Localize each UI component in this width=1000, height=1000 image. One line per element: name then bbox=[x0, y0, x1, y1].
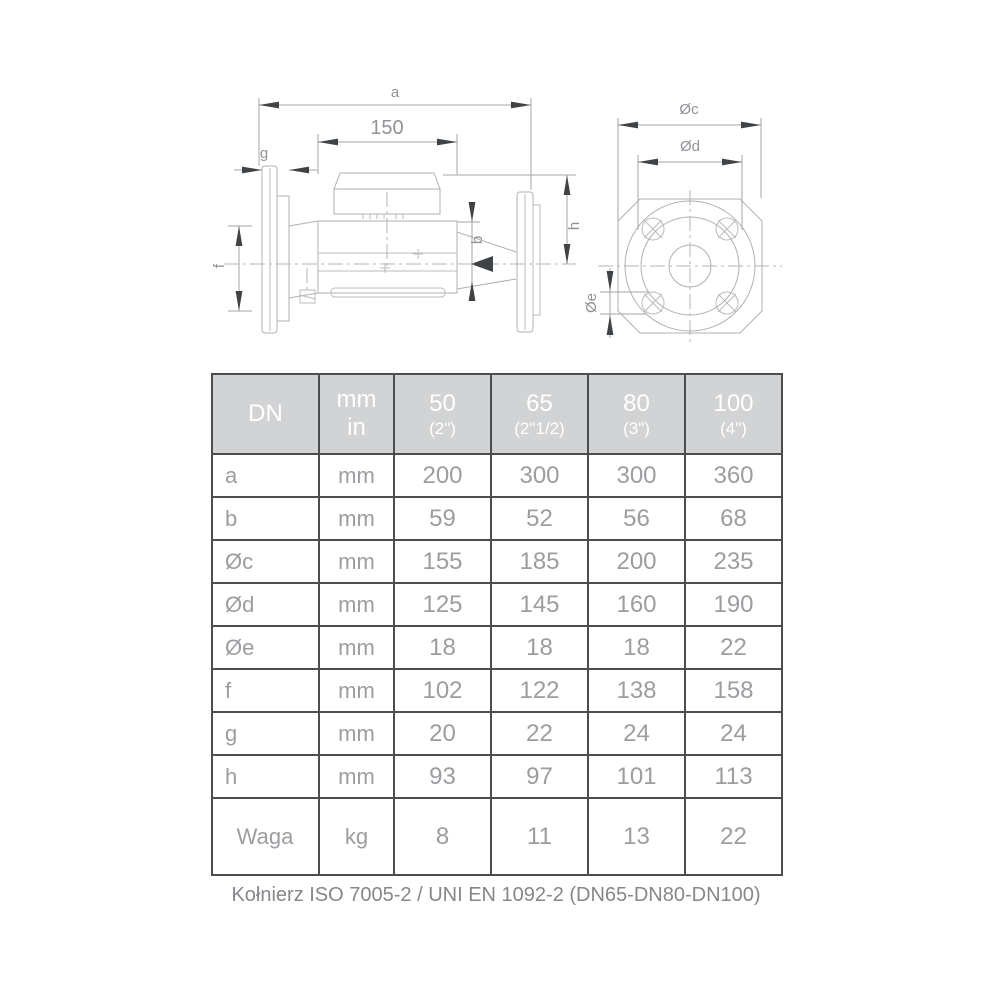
dim-label-b: b bbox=[469, 236, 486, 244]
dim-label-150: 150 bbox=[370, 117, 403, 139]
value-cell: 200 bbox=[588, 540, 685, 583]
header-cell-dn: DN bbox=[212, 374, 319, 454]
unit-cell: mm bbox=[319, 583, 394, 626]
row-label-cell: a bbox=[212, 454, 319, 497]
register-markings bbox=[363, 214, 403, 219]
front-view-dimensions: Øc Ød Øe bbox=[583, 101, 761, 338]
header-unit-in: in bbox=[321, 414, 392, 442]
front-view bbox=[598, 190, 782, 342]
unit-cell: mm bbox=[319, 669, 394, 712]
flow-direction-icon bbox=[471, 256, 493, 272]
unit-cell: mm bbox=[319, 497, 394, 540]
size-inch: (2") bbox=[396, 418, 489, 439]
row-label-cell: Øe bbox=[212, 626, 319, 669]
header-cell-size-50: 50 (2") bbox=[394, 374, 491, 454]
value-cell: 300 bbox=[491, 454, 588, 497]
value-cell: 200 bbox=[394, 454, 491, 497]
unit-cell: mm bbox=[319, 755, 394, 798]
value-cell: 101 bbox=[588, 755, 685, 798]
size-inch: (4") bbox=[687, 418, 780, 439]
size-dn: 65 bbox=[493, 390, 586, 418]
dim-label-dc: Øc bbox=[679, 101, 699, 118]
row-label-cell: f bbox=[212, 669, 319, 712]
value-cell: 20 bbox=[394, 712, 491, 755]
value-cell: 145 bbox=[491, 583, 588, 626]
dimension-table: DN mm in 50 (2") 65 (2"1/2) 80 (3") bbox=[211, 373, 783, 876]
size-dn: 100 bbox=[687, 390, 780, 418]
value-cell: 22 bbox=[685, 798, 782, 875]
dim-label-de: Øe bbox=[583, 293, 600, 313]
dim-label-g: g bbox=[260, 145, 268, 162]
value-cell: 97 bbox=[491, 755, 588, 798]
value-cell: 122 bbox=[491, 669, 588, 712]
value-cell: 160 bbox=[588, 583, 685, 626]
value-cell: 102 bbox=[394, 669, 491, 712]
value-cell: 13 bbox=[588, 798, 685, 875]
header-cell-size-80: 80 (3") bbox=[588, 374, 685, 454]
size-dn: 80 bbox=[590, 390, 683, 418]
side-view bbox=[224, 166, 576, 333]
value-cell: 24 bbox=[588, 712, 685, 755]
value-cell: 22 bbox=[491, 712, 588, 755]
value-cell: 235 bbox=[685, 540, 782, 583]
value-cell: 18 bbox=[588, 626, 685, 669]
value-cell: 22 bbox=[685, 626, 782, 669]
value-cell: 52 bbox=[491, 497, 588, 540]
table-row: g mm 20 22 24 24 bbox=[212, 712, 782, 755]
size-inch: (3") bbox=[590, 418, 683, 439]
header-cell-size-65: 65 (2"1/2) bbox=[491, 374, 588, 454]
dim-label-h: h bbox=[566, 222, 583, 230]
row-label-cell: Waga bbox=[212, 798, 319, 875]
table-row: b mm 59 52 56 68 bbox=[212, 497, 782, 540]
value-cell: 93 bbox=[394, 755, 491, 798]
value-cell: 155 bbox=[394, 540, 491, 583]
unit-cell: mm bbox=[319, 626, 394, 669]
value-cell: 158 bbox=[685, 669, 782, 712]
value-cell: 138 bbox=[588, 669, 685, 712]
datasheet-page: a 150 g b h f bbox=[0, 0, 1000, 1000]
size-inch: (2"1/2) bbox=[493, 418, 586, 439]
value-cell: 125 bbox=[394, 583, 491, 626]
value-cell: 18 bbox=[491, 626, 588, 669]
unit-cell: mm bbox=[319, 540, 394, 583]
value-cell: 56 bbox=[588, 497, 685, 540]
value-cell: 113 bbox=[685, 755, 782, 798]
header-unit-mm: mm bbox=[321, 386, 392, 414]
dim-label-a: a bbox=[391, 84, 400, 101]
table-row: Ød mm 125 145 160 190 bbox=[212, 583, 782, 626]
flange-standard-note: Kołnierz ISO 7005-2 / UNI EN 1092-2 (DN6… bbox=[181, 884, 811, 907]
row-label-cell: Øc bbox=[212, 540, 319, 583]
table-row-weight: Waga kg 8 11 13 22 bbox=[212, 798, 782, 875]
value-cell: 185 bbox=[491, 540, 588, 583]
size-dn: 50 bbox=[396, 390, 489, 418]
table-row: Øc mm 155 185 200 235 bbox=[212, 540, 782, 583]
dim-label-dd: Ød bbox=[680, 138, 700, 155]
unit-cell: mm bbox=[319, 454, 394, 497]
table-row: h mm 93 97 101 113 bbox=[212, 755, 782, 798]
value-cell: 11 bbox=[491, 798, 588, 875]
table-row: Øe mm 18 18 18 22 bbox=[212, 626, 782, 669]
table-row: a mm 200 300 300 360 bbox=[212, 454, 782, 497]
unit-cell: kg bbox=[319, 798, 394, 875]
value-cell: 190 bbox=[685, 583, 782, 626]
row-label-cell: Ød bbox=[212, 583, 319, 626]
value-cell: 24 bbox=[685, 712, 782, 755]
table-row: f mm 102 122 138 158 bbox=[212, 669, 782, 712]
row-label-cell: b bbox=[212, 497, 319, 540]
value-cell: 300 bbox=[588, 454, 685, 497]
table-header-row: DN mm in 50 (2") 65 (2"1/2) 80 (3") bbox=[212, 374, 782, 454]
row-label-cell: g bbox=[212, 712, 319, 755]
value-cell: 18 bbox=[394, 626, 491, 669]
value-cell: 8 bbox=[394, 798, 491, 875]
side-view-dimensions: a 150 g b h f bbox=[211, 84, 583, 311]
value-cell: 59 bbox=[394, 497, 491, 540]
row-label-cell: h bbox=[212, 755, 319, 798]
header-cell-size-100: 100 (4") bbox=[685, 374, 782, 454]
value-cell: 360 bbox=[685, 454, 782, 497]
technical-drawing: a 150 g b h f bbox=[0, 0, 1000, 365]
unit-cell: mm bbox=[319, 712, 394, 755]
header-cell-unit: mm in bbox=[319, 374, 394, 454]
value-cell: 68 bbox=[685, 497, 782, 540]
